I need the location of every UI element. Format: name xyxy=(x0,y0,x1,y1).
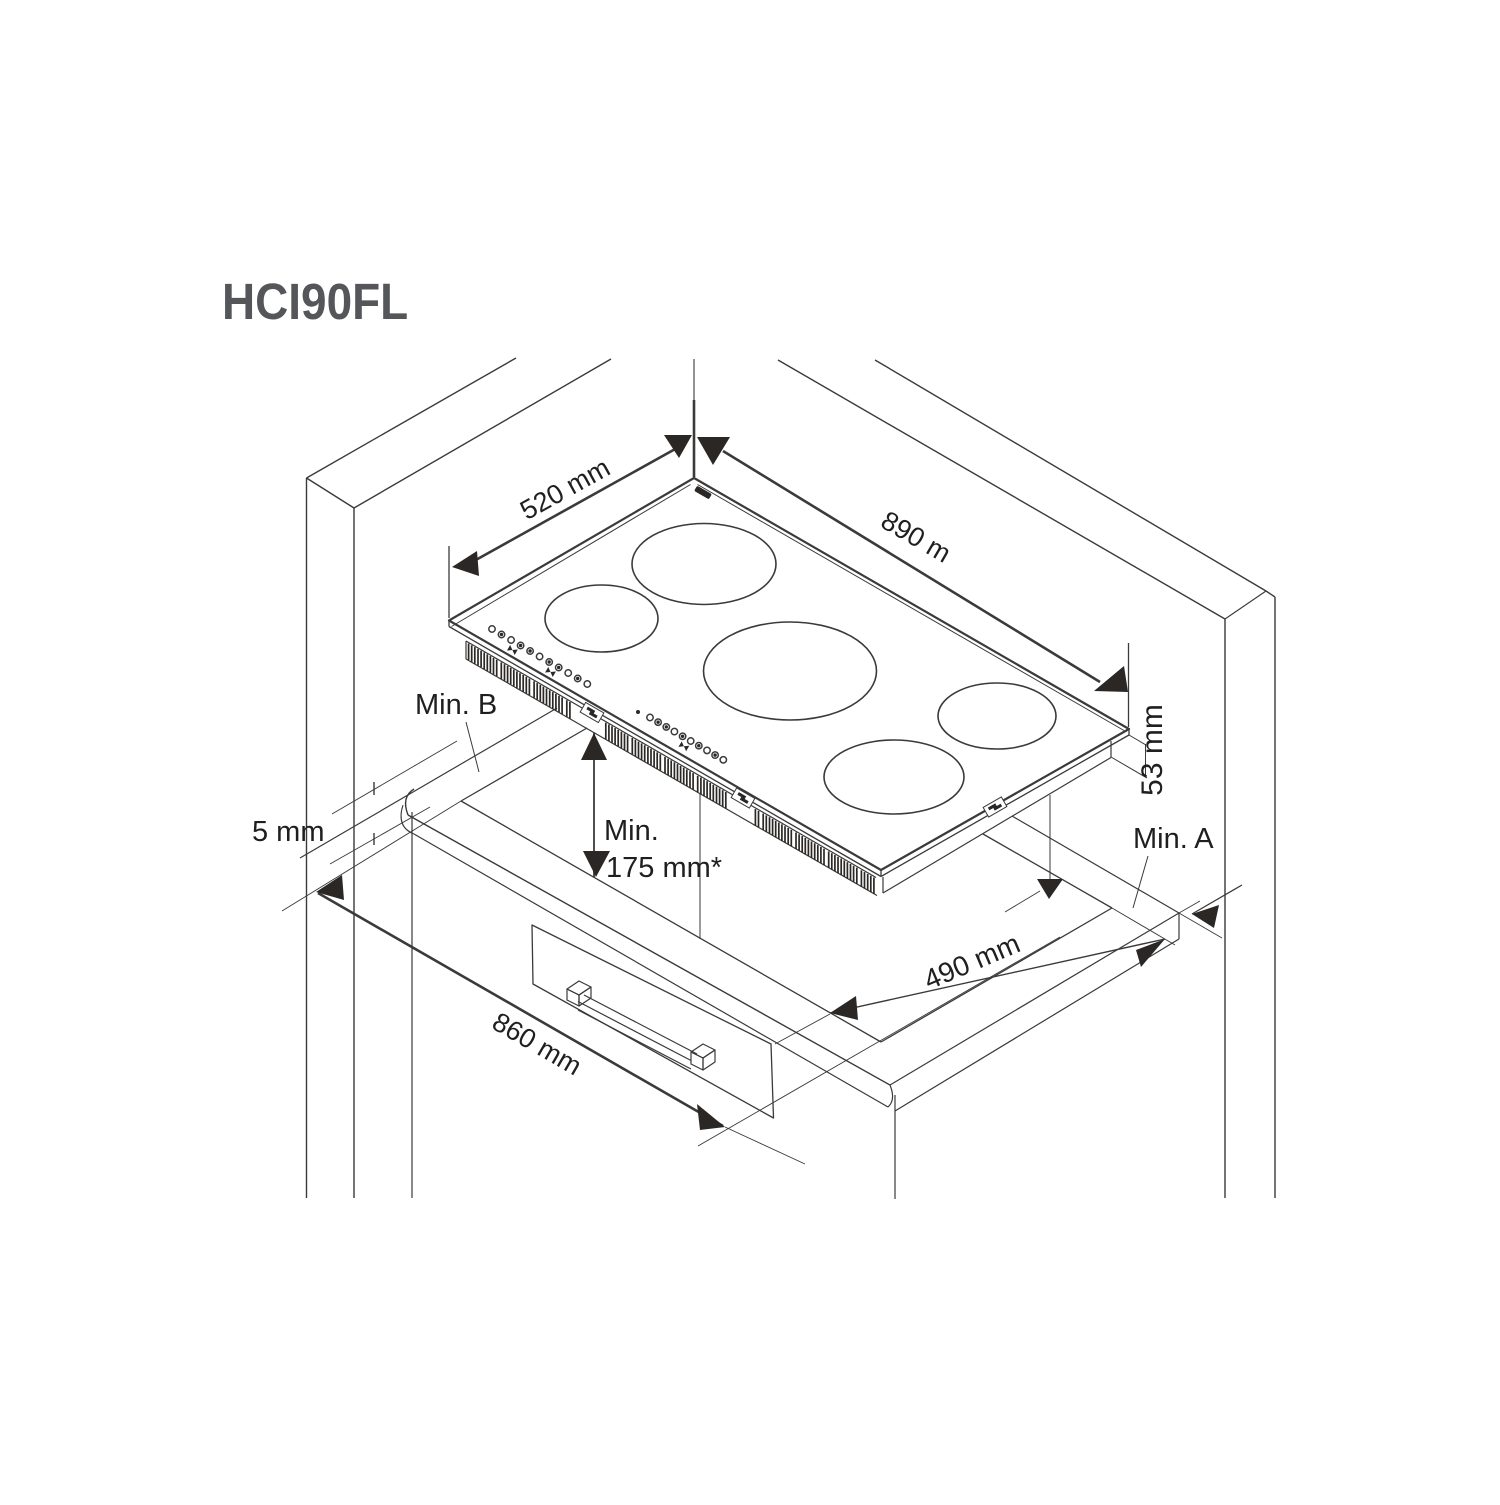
svg-text:Min.: Min. xyxy=(604,815,659,847)
svg-text:890 m: 890 m xyxy=(876,505,956,569)
svg-text:5 mm: 5 mm xyxy=(252,816,325,848)
svg-text:490 mm: 490 mm xyxy=(919,928,1024,996)
svg-text:520 mm: 520 mm xyxy=(515,452,615,526)
svg-text:Min. A: Min. A xyxy=(1133,823,1214,855)
svg-text:175 mm*: 175 mm* xyxy=(606,852,722,884)
svg-text:Min. B: Min. B xyxy=(415,689,497,721)
svg-text:53 mm: 53 mm xyxy=(1136,704,1169,796)
